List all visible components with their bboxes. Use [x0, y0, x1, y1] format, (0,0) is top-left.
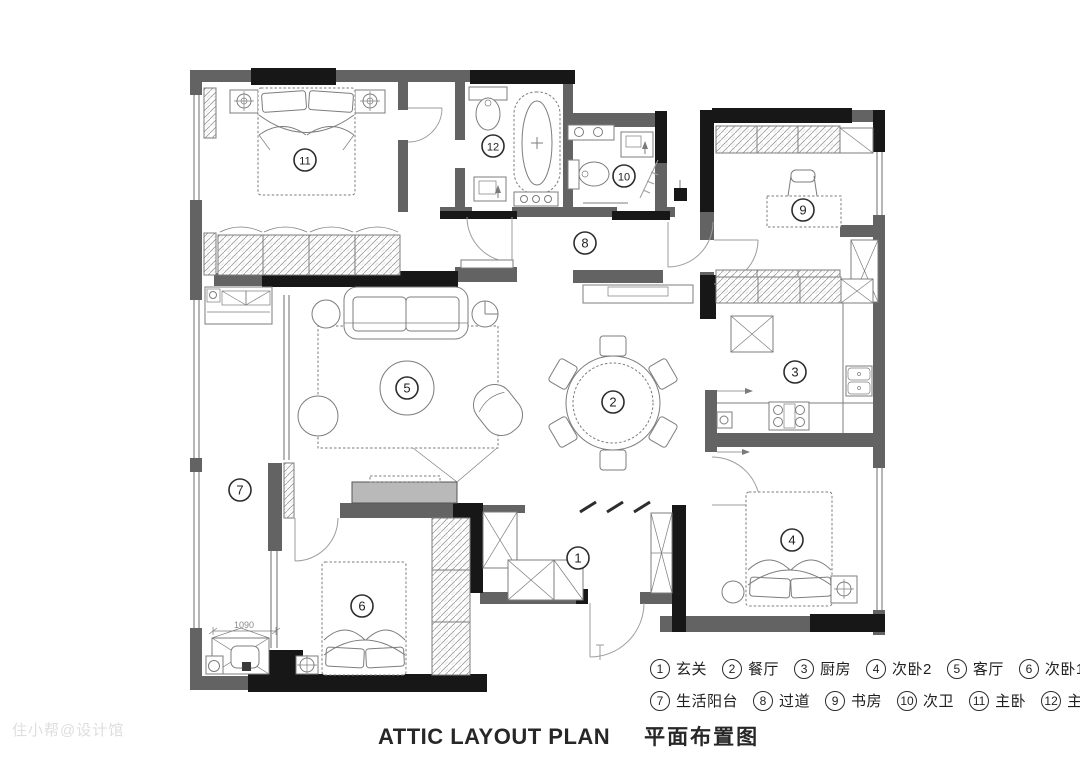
room-marker-number: 4	[788, 533, 795, 548]
legend-item-8: 8过道	[753, 690, 810, 711]
door-bath12	[467, 217, 512, 262]
plan-title-en: ATTIC LAYOUT PLAN	[378, 724, 610, 750]
legend-item-5: 5客厅	[947, 658, 1004, 679]
room-marker-number: 5	[403, 381, 410, 396]
chaise	[466, 377, 530, 443]
ceiling-lamp-icon	[296, 655, 318, 675]
room-marker-number: 8	[581, 236, 588, 251]
legend-number-circle: 5	[947, 659, 967, 679]
legend-item-7: 7生活阳台	[650, 690, 738, 711]
legend-number-circle: 4	[866, 659, 886, 679]
plan-title-zh: 平面布置图	[644, 721, 759, 751]
legend-label: 餐厅	[748, 658, 779, 679]
wardrobe-master	[218, 227, 400, 275]
laundry-sink	[206, 656, 223, 674]
room-bedroom6	[296, 518, 470, 675]
room-marker-number: 12	[487, 142, 499, 154]
double-vanity	[568, 125, 614, 140]
legend-item-4: 4次卧2	[866, 658, 932, 679]
bed-master	[258, 88, 355, 195]
room-marker-number: 10	[618, 172, 630, 184]
window-right-bedroom4	[873, 468, 885, 610]
legend-number-circle: 8	[753, 691, 773, 711]
curtain-strip	[204, 88, 216, 138]
legend-label: 客厅	[973, 658, 1004, 679]
window-right-study	[873, 152, 885, 215]
fridge	[731, 316, 773, 352]
watermark: 住小帮@设计馆	[12, 719, 124, 740]
legend-item-10: 10次卫	[897, 690, 954, 711]
armchair	[298, 396, 338, 436]
legend-number-circle: 2	[722, 659, 742, 679]
legend-item-12: 12主卫	[1041, 690, 1080, 711]
legend-label: 过道	[779, 690, 810, 711]
door-bedroom6	[295, 518, 338, 561]
room-marker-number: 3	[791, 365, 798, 380]
window-left-bedroom11	[190, 95, 202, 200]
floor-transition-marks	[580, 502, 650, 512]
legend-item-3: 3厨房	[794, 658, 851, 679]
legend-item-2: 2餐厅	[722, 658, 779, 679]
sofa	[344, 287, 468, 339]
legend-number-circle: 1	[650, 659, 670, 679]
floor-plan-page: 1090 123456789101112 1玄关2餐厅3厨房4次卧25客厅6次卧…	[0, 0, 1080, 763]
legend-number-circle: 11	[969, 691, 989, 711]
legend-row-1: 1玄关2餐厅3厨房4次卧25客厅6次卧1	[650, 658, 1080, 679]
floor-plan-canvas: 1090 123456789101112	[0, 0, 1080, 763]
bathtub	[514, 92, 560, 194]
legend: 1玄关2餐厅3厨房4次卧25客厅6次卧17生活阳台8过道9书房10次卫11主卧1…	[650, 658, 1080, 711]
dimension-labels: 1090	[234, 620, 254, 630]
floor-lines	[413, 448, 497, 482]
room-marker-number: 11	[299, 156, 310, 168]
toilet	[469, 87, 507, 130]
legend-number-circle: 10	[897, 691, 917, 711]
cabinet	[621, 132, 653, 157]
legend-number-circle: 3	[794, 659, 814, 679]
legend-label: 玄关	[676, 658, 707, 679]
laundry-counter-top	[205, 287, 272, 324]
legend-item-9: 9书房	[825, 690, 882, 711]
legend-row-2: 7生活阳台8过道9书房10次卫11主卧12主卫	[650, 690, 1080, 711]
toilet	[568, 160, 609, 189]
legend-label: 主卧	[995, 690, 1026, 711]
window-left-balcony-lower	[190, 472, 202, 628]
legend-label: 书房	[851, 690, 882, 711]
bookshelf-top	[716, 126, 873, 153]
door-entry-main	[590, 603, 644, 660]
closet-row	[716, 277, 873, 303]
tv-console	[352, 476, 457, 503]
legend-number-circle: 6	[1019, 659, 1039, 679]
legend-item-6: 6次卧1	[1019, 658, 1080, 679]
room-marker-number: 7	[236, 483, 243, 498]
sideboard	[583, 285, 693, 303]
window-left-balcony-upper	[190, 300, 202, 458]
room-second-bath	[568, 125, 687, 203]
counter-box	[717, 412, 732, 428]
room-marker-number: 6	[358, 599, 365, 614]
door-dressing	[408, 108, 442, 142]
legend-item-11: 11主卧	[969, 690, 1026, 711]
bed-bedroom6	[322, 562, 406, 675]
room-marker-number: 1	[574, 551, 581, 566]
plan-title: ATTIC LAYOUT PLAN 平面布置图	[378, 721, 759, 751]
stool	[722, 581, 744, 603]
sink	[846, 366, 872, 396]
room-kitchen	[716, 277, 873, 433]
legend-number-circle: 9	[825, 691, 845, 711]
legend-label: 厨房	[820, 658, 851, 679]
curtain-strip	[284, 463, 294, 518]
legend-label: 生活阳台	[676, 690, 738, 711]
ac-unit	[674, 180, 687, 201]
legend-label: 次卧1	[1045, 658, 1080, 679]
room-marker-number: 9	[799, 203, 806, 218]
legend-label: 主卫	[1067, 690, 1080, 711]
legend-number-circle: 7	[650, 691, 670, 711]
nightstand	[831, 576, 857, 603]
legend-label: 次卫	[923, 690, 954, 711]
side-table	[472, 301, 498, 327]
legend-number-circle: 12	[1041, 691, 1061, 711]
room-master-bedroom	[204, 88, 400, 275]
legend-label: 次卧2	[892, 658, 932, 679]
hall-cabinet	[651, 513, 672, 593]
dimension-text: 1090	[234, 620, 254, 630]
hall-console	[461, 260, 513, 268]
armchair	[312, 300, 340, 328]
curtain-strip	[204, 233, 216, 275]
stove	[769, 402, 809, 430]
vanity	[474, 177, 506, 201]
tub-shelf	[514, 192, 558, 206]
window-balcony-living	[284, 295, 289, 460]
room-marker-number: 2	[609, 395, 616, 410]
legend-item-1: 1玄关	[650, 658, 707, 679]
wardrobe-bedroom6	[432, 518, 470, 675]
